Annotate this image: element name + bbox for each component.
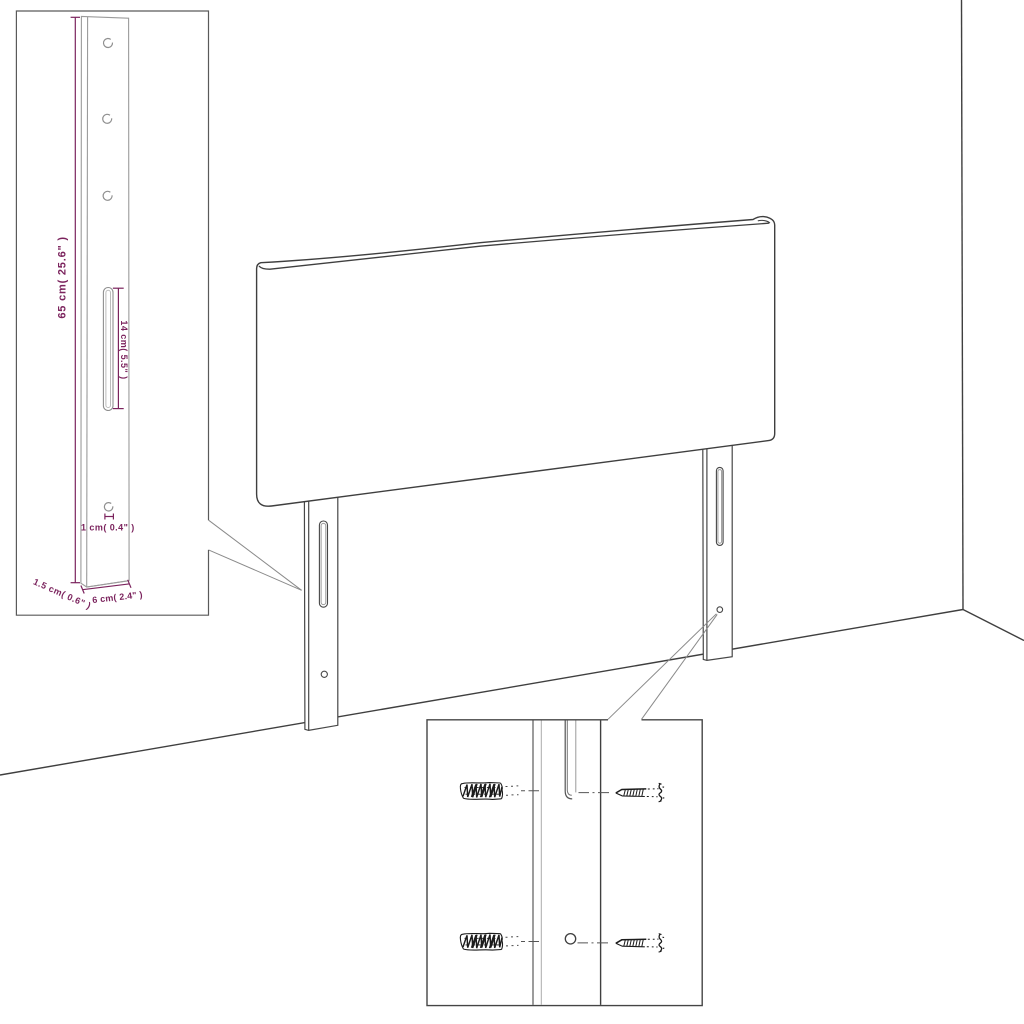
svg-text:1 cm( 0.4" ): 1 cm( 0.4" ) xyxy=(81,523,135,533)
svg-text:14 cm( 5.5" ): 14 cm( 5.5" ) xyxy=(119,320,129,379)
svg-text:65 cm( 25.6" ): 65 cm( 25.6" ) xyxy=(57,236,69,318)
